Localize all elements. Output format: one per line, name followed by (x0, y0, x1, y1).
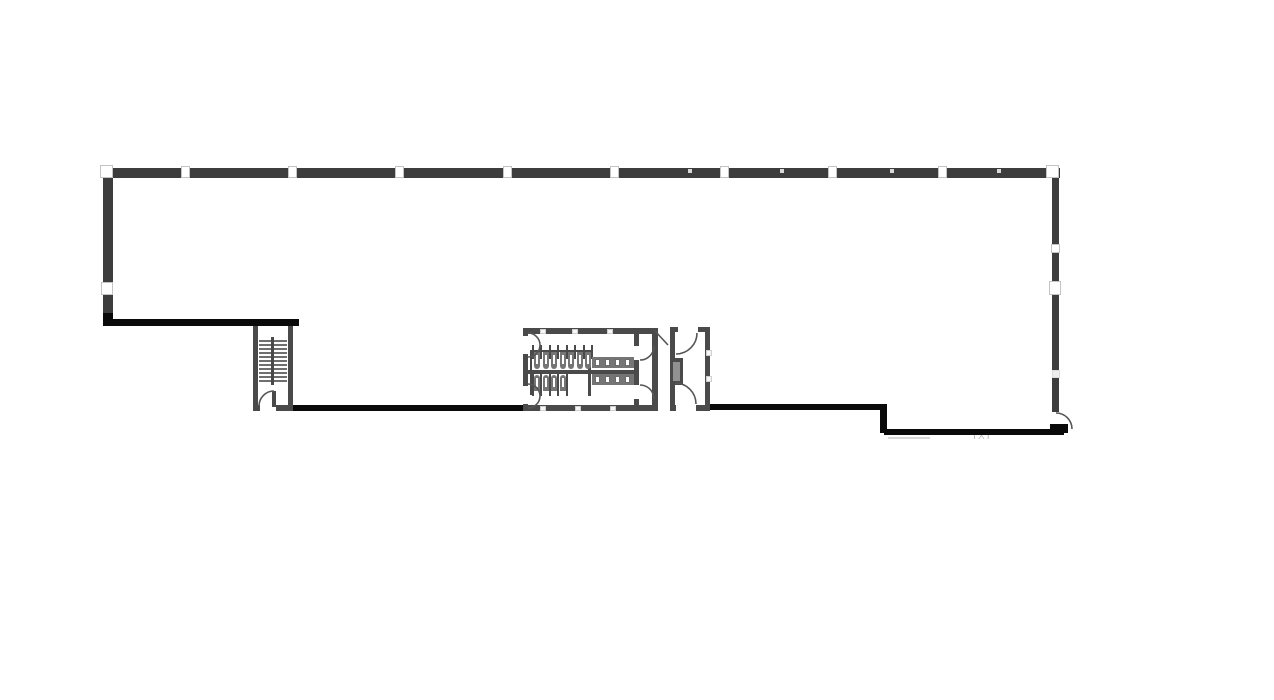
restroom-door-swing-bottom (528, 384, 540, 408)
restroom-door-swing-top (528, 333, 540, 357)
corridor-door-leaf (655, 331, 668, 345)
stair-door-swing (259, 391, 274, 406)
vestibule-door-swing-top (640, 346, 654, 360)
floor-plan: IXI (0, 0, 1274, 700)
door-swing-arcs (0, 0, 1274, 700)
utility-door-swing-top (676, 333, 697, 354)
vestibule-door-swing-bottom (640, 385, 654, 399)
utility-door-swing-bottom (675, 383, 696, 404)
exterior-door-swing (1056, 413, 1072, 429)
